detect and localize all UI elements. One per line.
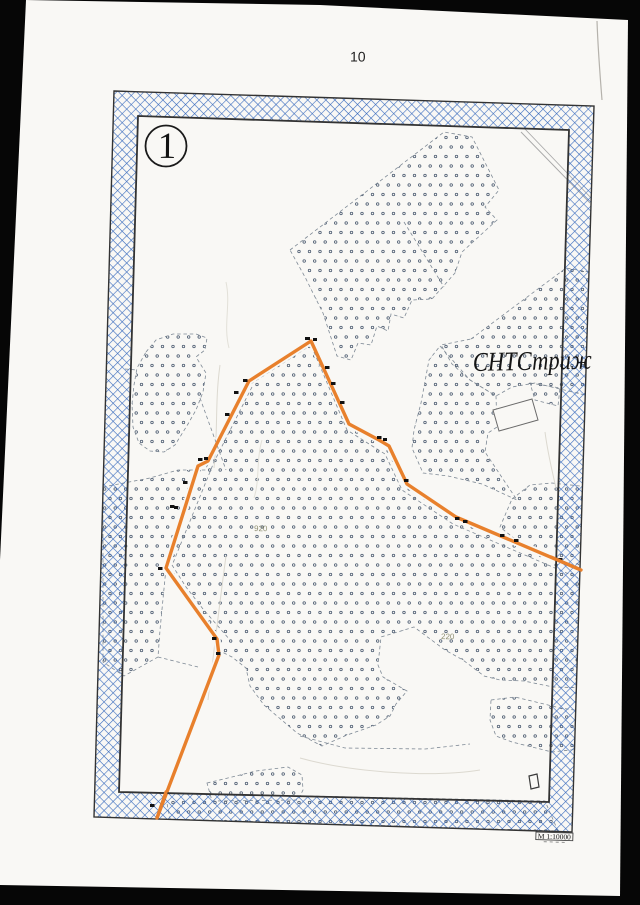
svg-text:М 1:10000: М 1:10000 — [538, 832, 572, 841]
svg-text:10: 10 — [350, 49, 366, 65]
svg-text:220: 220 — [441, 632, 455, 641]
svg-text:СНТСтриж: СНТСтриж — [472, 345, 592, 377]
svg-text:920: 920 — [254, 524, 268, 533]
svg-text:1: 1 — [158, 126, 177, 167]
